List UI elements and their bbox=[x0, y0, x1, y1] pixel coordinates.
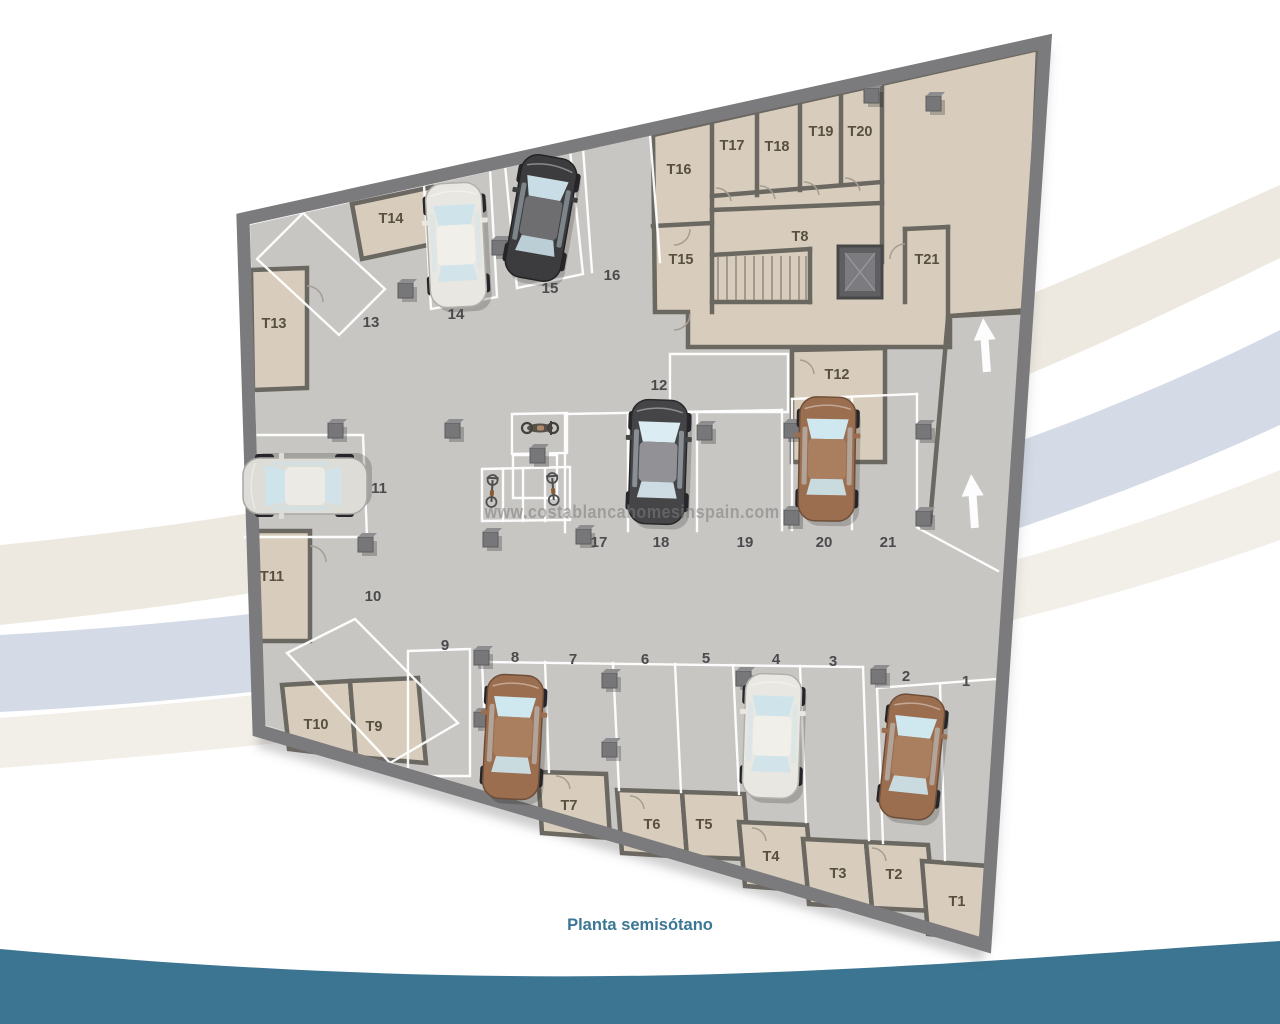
storage-room-label-T13: T13 bbox=[262, 316, 287, 332]
parking-spot-label-15: 15 bbox=[542, 280, 559, 297]
storage-room-label-T9: T9 bbox=[366, 719, 383, 735]
parking-spot-label-7: 7 bbox=[569, 651, 577, 668]
parking-spot-label-6: 6 bbox=[641, 651, 649, 668]
storage-room-label-T15: T15 bbox=[669, 252, 694, 268]
parking-spot-label-17: 17 bbox=[591, 534, 608, 551]
storage-room-label-T7: T7 bbox=[561, 798, 578, 814]
storage-room-label-T4: T4 bbox=[763, 849, 780, 865]
car-spot-20 bbox=[793, 396, 861, 526]
storage-room-label-T5: T5 bbox=[696, 817, 713, 833]
parking-spot-label-21: 21 bbox=[880, 534, 897, 551]
floor-plan-canvas: 123456789101112131415161718192021 T1T2T3… bbox=[0, 0, 1280, 1024]
parking-spot-label-13: 13 bbox=[363, 314, 380, 331]
storage-room-label-T18: T18 bbox=[765, 139, 790, 155]
storage-room-label-T12: T12 bbox=[825, 367, 850, 383]
storage-room-label-T3: T3 bbox=[830, 866, 847, 882]
storage-room-label-T6: T6 bbox=[644, 817, 661, 833]
parking-spot-label-14: 14 bbox=[448, 306, 465, 323]
parking-spot-label-2: 2 bbox=[902, 668, 910, 685]
parking-spot-label-9: 9 bbox=[441, 637, 449, 654]
storage-room-label-T1: T1 bbox=[949, 894, 966, 910]
storage-room-label-T2: T2 bbox=[886, 867, 903, 883]
parking-spot-label-5: 5 bbox=[702, 650, 710, 667]
storage-room-label-T17: T17 bbox=[720, 138, 745, 154]
car-spot-11 bbox=[243, 453, 372, 519]
storage-room-label-T10: T10 bbox=[304, 717, 329, 733]
storage-room-label-T8: T8 bbox=[792, 229, 809, 245]
parking-spot-label-1: 1 bbox=[962, 673, 970, 690]
teal-wave-footer bbox=[0, 941, 1280, 1024]
parking-spot-label-11: 11 bbox=[371, 480, 387, 497]
parking-spot-label-3: 3 bbox=[829, 653, 837, 670]
storage-room-label-T16: T16 bbox=[667, 162, 692, 178]
parking-spot-label-16: 16 bbox=[604, 267, 621, 284]
car-spot-4 bbox=[737, 673, 807, 804]
storage-room-label-T19: T19 bbox=[809, 124, 834, 140]
car-spot-14 bbox=[420, 181, 493, 313]
storage-room-label-T14: T14 bbox=[379, 211, 404, 227]
parking-spot-label-19: 19 bbox=[737, 534, 754, 551]
elevator bbox=[838, 246, 882, 298]
parking-spot-label-4: 4 bbox=[772, 651, 781, 668]
watermark-text: www.costablancahomesinspain.com bbox=[484, 502, 780, 522]
parking-spot-label-20: 20 bbox=[816, 534, 833, 551]
parking-spot-label-18: 18 bbox=[653, 534, 670, 551]
plan-caption: Planta semisótano bbox=[567, 916, 713, 934]
storage-room-label-T21: T21 bbox=[915, 252, 940, 268]
parking-spot-label-8: 8 bbox=[511, 649, 519, 666]
parking-spot-label-12: 12 bbox=[651, 377, 668, 394]
storage-room-label-T20: T20 bbox=[848, 124, 873, 140]
car-spot-8 bbox=[477, 673, 550, 805]
floor-plan-page: 123456789101112131415161718192021 T1T2T3… bbox=[0, 0, 1280, 1024]
parking-spot-label-10: 10 bbox=[365, 588, 382, 605]
storage-room-label-T11: T11 bbox=[260, 569, 284, 585]
